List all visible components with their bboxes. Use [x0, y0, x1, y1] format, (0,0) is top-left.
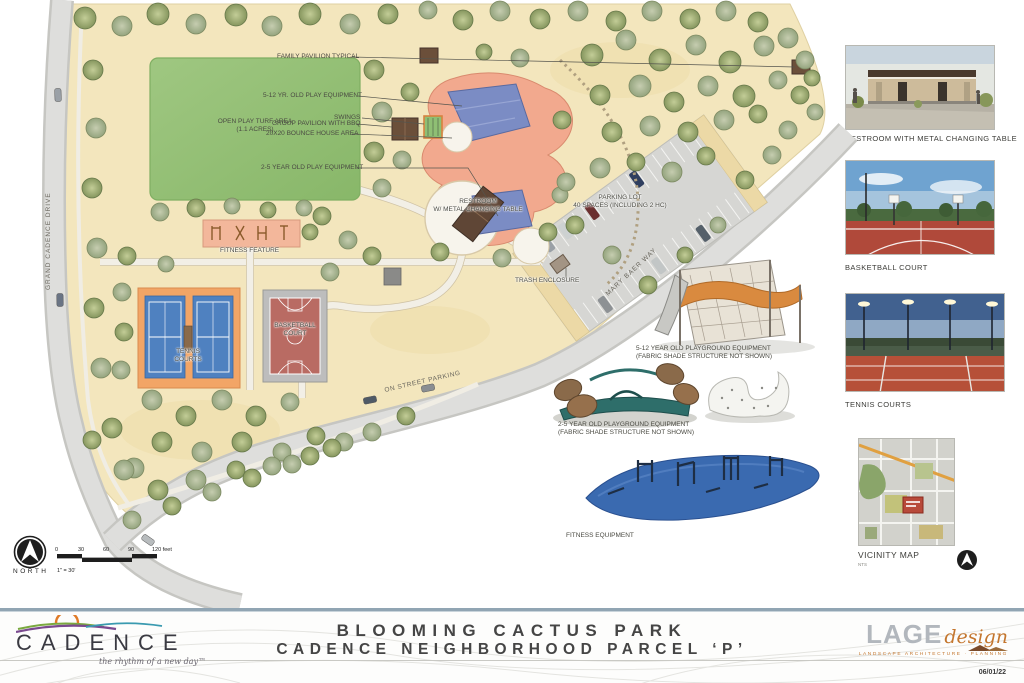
sheet-date: 06/01/22 — [979, 669, 1006, 676]
callout-parking: PARKING LOT 40 SPACES (INCLUDING 2 HC) — [555, 194, 685, 211]
label-rendering-fitness: FITNESS EQUIPMENT — [566, 532, 634, 540]
equipment-renderings — [540, 250, 840, 550]
rendering-fitness-equipment — [586, 455, 819, 520]
callout-group-pavilion: GROUP PAVILION WITH BBQ — [272, 120, 361, 128]
scale-bar: 0 30 60 90 120 feet 1" = 30' — [52, 542, 182, 576]
callout-trash-enclosure: TRASH ENCLOSURE — [515, 277, 579, 285]
street-grand-cadence-drive: GRAND CADENCE DRIVE — [45, 192, 52, 290]
label-rendering-2-5: 2-5 YEAR OLD PLAYGROUND EQUIPMENT (FABRI… — [558, 421, 694, 438]
cadence-logo: CADENCE the rhythm of a new day™ — [16, 615, 226, 666]
scale-tick-0: 0 — [55, 547, 58, 553]
title-block-footer: BLOOMING CACTUS PARK CADENCE NEIGHBORHOO… — [0, 608, 1024, 683]
callout-basketball: BASKETBALL COURT — [263, 322, 327, 339]
callout-play-2-5: 2-5 YEAR OLD PLAY EQUIPMENT — [261, 164, 363, 172]
cadence-wordmark: CADENCE — [16, 630, 226, 656]
callout-fitness-feature: FITNESS FEATURE — [220, 247, 279, 255]
north-arrow-icon — [12, 534, 48, 570]
callout-play-5-12: 5-12 YR. OLD PLAY EQUIPMENT — [263, 92, 362, 100]
scale-tick-120: 120 feet — [152, 547, 172, 553]
label-rendering-5-12: 5-12 YEAR OLD PLAYGROUND EQUIPMENT (FABR… — [636, 345, 772, 362]
callout-bounce-house: 20X20 BOUNCE HOUSE AREA — [266, 130, 358, 138]
presentation-board: GRAND CADENCE DRIVE MARY BAER WAY ON STR… — [0, 0, 1024, 683]
vicinity-north-arrow-icon — [956, 549, 978, 571]
lage-wordmark: LAGE — [866, 619, 942, 650]
cadence-tagline: the rhythm of a new day™ — [16, 657, 206, 666]
rendering-climber-sculpture — [705, 372, 795, 423]
scale-tick-90: 90 — [128, 547, 134, 553]
lage-logo: LAGEdesign LANDSCAPE ARCHITECTURE · PLAN… — [859, 619, 1008, 657]
callout-tennis: TENNIS COURTS — [160, 348, 216, 365]
scale-tick-30: 30 — [78, 547, 84, 553]
callout-restroom: RESTROOM W/ METAL CHANGING TABLE — [428, 198, 528, 215]
tennis-courts-plan — [138, 288, 240, 388]
half-court-pad — [384, 268, 401, 285]
callout-family-pavilion: FAMILY PAVILION TYPICAL — [277, 53, 359, 61]
fitness-feature-pad — [203, 220, 300, 247]
lage-tagline: LANDSCAPE ARCHITECTURE · PLANNING — [859, 652, 1008, 657]
rendering-play-2-5 — [551, 361, 701, 428]
site-plan-drawing: GRAND CADENCE DRIVE MARY BAER WAY ON STR… — [0, 0, 1024, 608]
rendering-play-5-12 — [655, 260, 815, 355]
lage-script: design — [944, 626, 1008, 648]
scale-note: 1" = 30' — [57, 568, 75, 574]
scale-tick-60: 60 — [103, 547, 109, 553]
